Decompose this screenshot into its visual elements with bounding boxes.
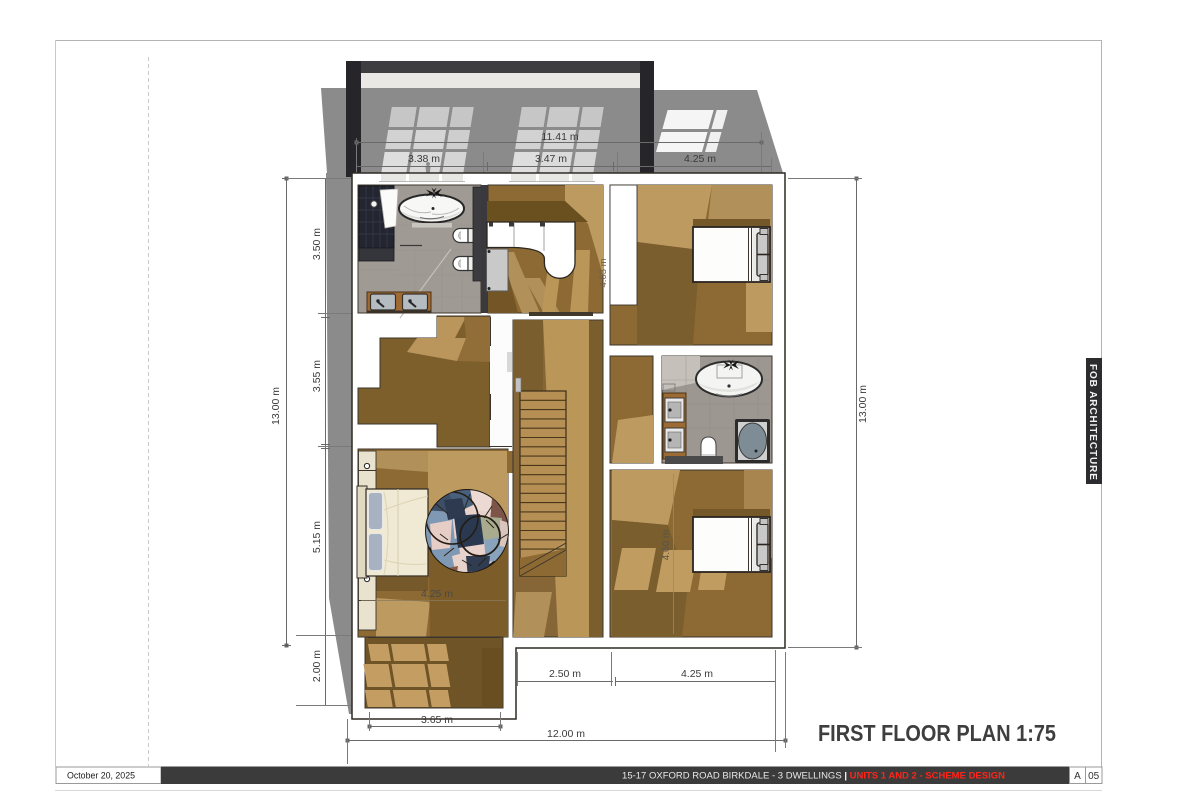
svg-text:5.15 m: 5.15 m bbox=[311, 521, 323, 553]
svg-text:13.00 m: 13.00 m bbox=[270, 387, 282, 425]
svg-text:13.00 m: 13.00 m bbox=[857, 385, 869, 423]
svg-text:4.25 m: 4.25 m bbox=[681, 668, 713, 680]
svg-text:FOB ARCHITECTURE: FOB ARCHITECTURE bbox=[1087, 364, 1098, 481]
svg-text:15-17 OXFORD ROAD BIRKDALE - 3: 15-17 OXFORD ROAD BIRKDALE - 3 DWELLINGS… bbox=[622, 771, 1005, 782]
svg-text:2.50 m: 2.50 m bbox=[549, 668, 581, 680]
svg-text:05: 05 bbox=[1088, 771, 1100, 782]
svg-text:3.47 m: 3.47 m bbox=[535, 153, 567, 165]
svg-text:4.25 m: 4.25 m bbox=[684, 153, 716, 165]
svg-text:4.25 m: 4.25 m bbox=[421, 588, 453, 600]
svg-text:2.00 m: 2.00 m bbox=[311, 650, 323, 682]
svg-text:October 20, 2025: October 20, 2025 bbox=[67, 771, 135, 782]
svg-text:12.00 m: 12.00 m bbox=[547, 728, 585, 740]
svg-text:A: A bbox=[1074, 771, 1081, 782]
svg-text:4.63 m: 4.63 m bbox=[598, 258, 609, 287]
svg-text:3.50 m: 3.50 m bbox=[311, 228, 323, 260]
svg-text:FIRST FLOOR PLAN 1:75: FIRST FLOOR PLAN 1:75 bbox=[818, 720, 1056, 746]
svg-text:4.60 m: 4.60 m bbox=[661, 530, 672, 561]
svg-text:3.55 m: 3.55 m bbox=[311, 360, 323, 392]
svg-text:11.41 m: 11.41 m bbox=[541, 131, 578, 143]
svg-text:3.65 m: 3.65 m bbox=[421, 714, 453, 726]
svg-text:3.38 m: 3.38 m bbox=[408, 153, 440, 165]
